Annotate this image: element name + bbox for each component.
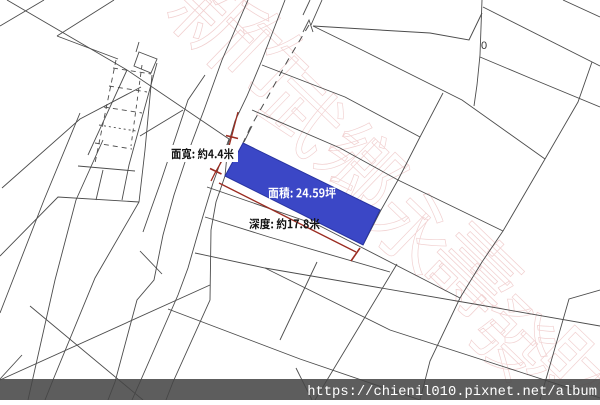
svg-text:0: 0 <box>481 40 487 52</box>
svg-text:https://chienil010.pixnet.net/: https://chienil010.pixnet.net/album <box>307 384 597 400</box>
